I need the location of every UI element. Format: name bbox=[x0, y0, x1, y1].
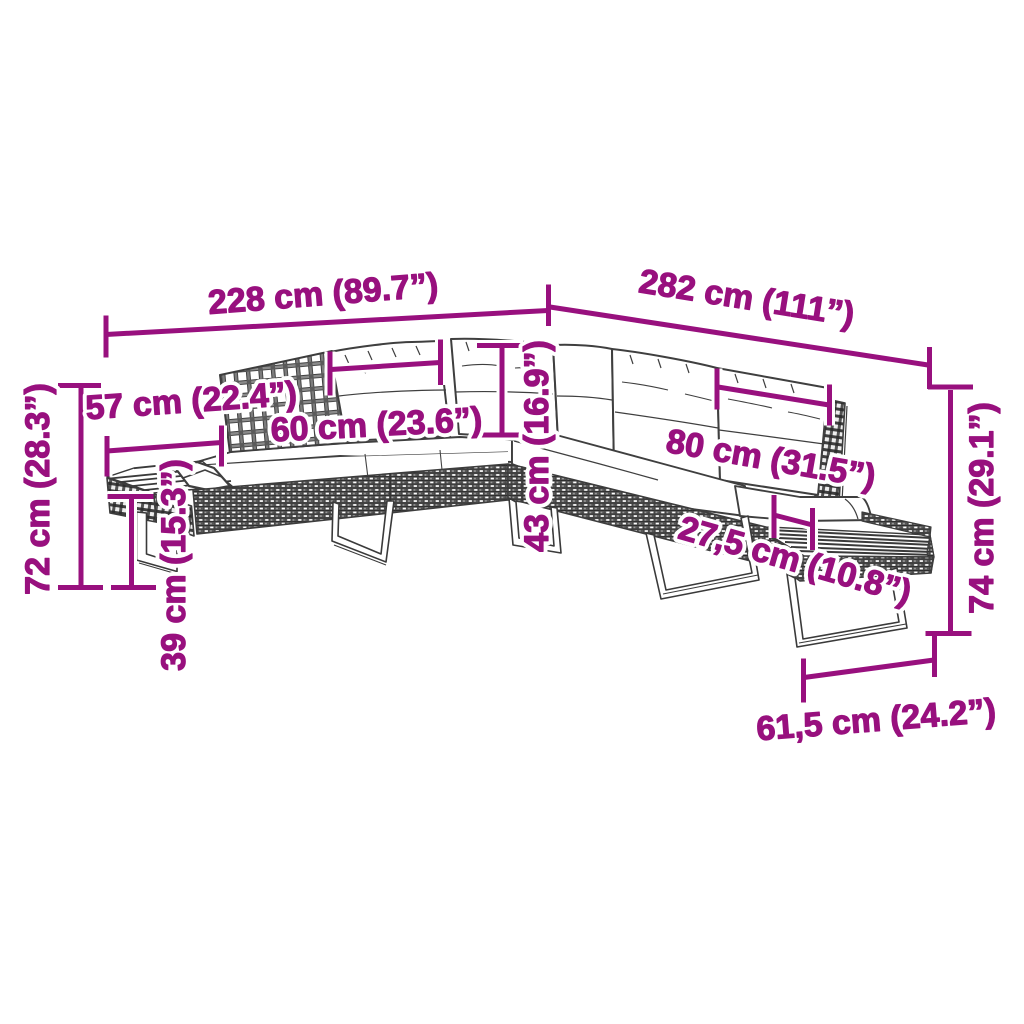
svg-text:72 cm (28.3”): 72 cm (28.3”) bbox=[19, 383, 57, 595]
svg-text:74 cm (29.1”): 74 cm (29.1”) bbox=[963, 402, 1001, 614]
svg-text:39 cm (15.3”): 39 cm (15.3”) bbox=[155, 459, 193, 671]
svg-text:43 cm (16.9”): 43 cm (16.9”) bbox=[518, 340, 556, 552]
